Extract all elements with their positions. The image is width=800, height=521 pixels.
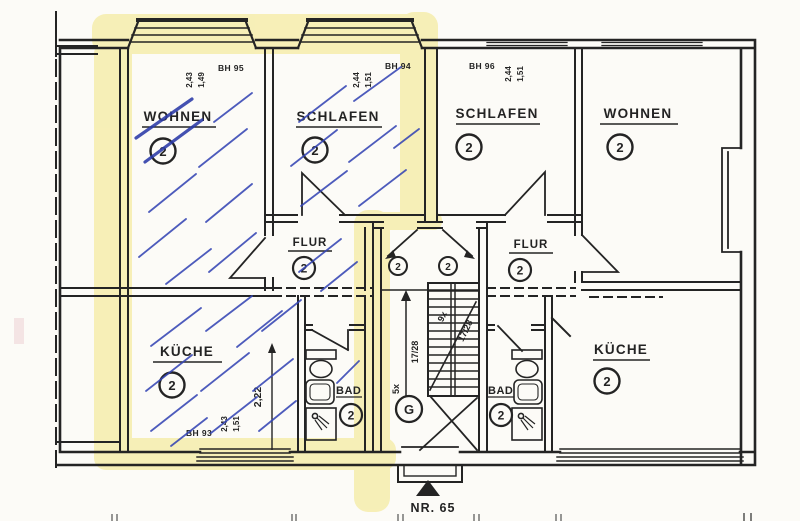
door-bad-left <box>312 330 348 350</box>
room-label-schlafen-right: SCHLAFEN <box>455 106 538 121</box>
svg-text:2: 2 <box>348 409 355 423</box>
occupancy-badge-wohnen-right: 2 <box>608 135 633 160</box>
toilet-bowl-right <box>516 361 538 378</box>
occupancy-badge-schlafen-right: 2 <box>457 135 482 160</box>
shower-head-icon-right <box>518 413 535 430</box>
window-kueche-right <box>557 449 743 461</box>
stair-door-badge-right: 2 <box>439 257 457 275</box>
window-dim2-bh96: 1,51 <box>516 66 525 82</box>
shower-head-icon-left <box>312 413 329 430</box>
shower-left <box>306 408 336 440</box>
window-code-bh93: BH 93 <box>186 428 212 438</box>
entrance-porch <box>398 465 462 496</box>
highlight-left-band <box>94 40 132 470</box>
window-dim1-bh95: 2,43 <box>185 72 194 88</box>
occupancy-badge-flur-right: 2 <box>509 259 531 281</box>
room-label-wohnen-right: WOHNEN <box>604 106 673 121</box>
svg-text:2: 2 <box>498 409 505 423</box>
svg-text:2: 2 <box>445 262 451 273</box>
room-label-flur-left: FLUR <box>293 237 328 249</box>
highlight-party-wall-band <box>400 12 438 230</box>
bad-left-fixtures <box>306 350 336 440</box>
door-wohnen-right <box>582 235 618 272</box>
window-right-wall <box>722 148 741 252</box>
house-number-label: NR. 65 <box>411 501 456 515</box>
window-dim2-bh93: 1,51 <box>232 416 241 432</box>
stair-door-badge-left: 2 <box>389 257 407 275</box>
door-bad-right <box>498 326 522 351</box>
window-dim2-bh95: 1,49 <box>197 72 206 88</box>
ground-floor-badge: G <box>396 396 422 422</box>
svg-text:G: G <box>404 402 414 417</box>
window-dim2-bh94: 1,51 <box>364 72 373 88</box>
sink-basin-left <box>310 384 330 400</box>
occupancy-badge-kueche-right: 2 <box>595 369 620 394</box>
toilet-bowl-left <box>310 361 332 378</box>
window-schlafen-right <box>487 43 567 46</box>
window-dim1-bh96: 2,44 <box>504 66 513 82</box>
room-label-bad-left: BAD <box>336 385 361 397</box>
kueche-dim-arrowhead <box>268 343 276 353</box>
scanned-floorplan-page: WOHNEN 2 SCHLAFEN 2 FLUR 2 KÜCHE 2 BAD 2 <box>0 0 800 521</box>
svg-text:2: 2 <box>465 140 472 155</box>
pen-strokes-kueche-left <box>146 296 301 446</box>
window-dim1-bh93: 2,43 <box>220 416 229 432</box>
room-label-bad-right: BAD <box>488 385 513 397</box>
door-wohnen-left <box>230 238 265 278</box>
room-label-schlafen-left: SCHLAFEN <box>296 109 379 124</box>
svg-text:2: 2 <box>517 264 524 278</box>
stair-count-upper: 9x <box>436 310 449 323</box>
stair-count-lower: 5x <box>391 384 401 394</box>
occupancy-badge-kueche-left: 2 <box>160 373 185 398</box>
door-schlafen-right <box>505 172 545 215</box>
stair-treads <box>428 291 479 387</box>
svg-text:2: 2 <box>395 262 401 273</box>
porch-inner-step <box>404 465 456 476</box>
sink-basin-right <box>518 384 538 400</box>
occupancy-badge-bad-right: 2 <box>490 404 512 426</box>
room-label-flur-right: FLUR <box>514 239 549 251</box>
stair-tread-lower: 17/28 <box>410 341 420 364</box>
room-label-kueche-right: KÜCHE <box>594 342 648 357</box>
window-code-bh95: BH 95 <box>218 63 244 73</box>
toilet-cistern-right <box>512 350 542 359</box>
window-wohnen-right <box>602 43 702 46</box>
scan-smudge <box>14 318 24 344</box>
stairs <box>401 283 479 396</box>
svg-text:2: 2 <box>603 374 610 389</box>
floorplan-canvas: WOHNEN 2 SCHLAFEN 2 FLUR 2 KÜCHE 2 BAD 2 <box>0 0 800 521</box>
stair-direction-arrowhead <box>401 290 411 301</box>
svg-text:2: 2 <box>616 140 623 155</box>
porch-outer-step <box>398 465 462 482</box>
room-label-kueche-left: KÜCHE <box>160 344 214 359</box>
toilet-cistern-left <box>306 350 336 359</box>
window-code-bh96: BH 96 <box>469 61 495 71</box>
window-dim1-bh94: 2,44 <box>352 72 361 88</box>
shower-right <box>512 408 542 440</box>
bad-right-fixtures <box>512 350 542 440</box>
door-schlafen-left <box>302 173 345 215</box>
svg-text:2: 2 <box>168 378 175 393</box>
